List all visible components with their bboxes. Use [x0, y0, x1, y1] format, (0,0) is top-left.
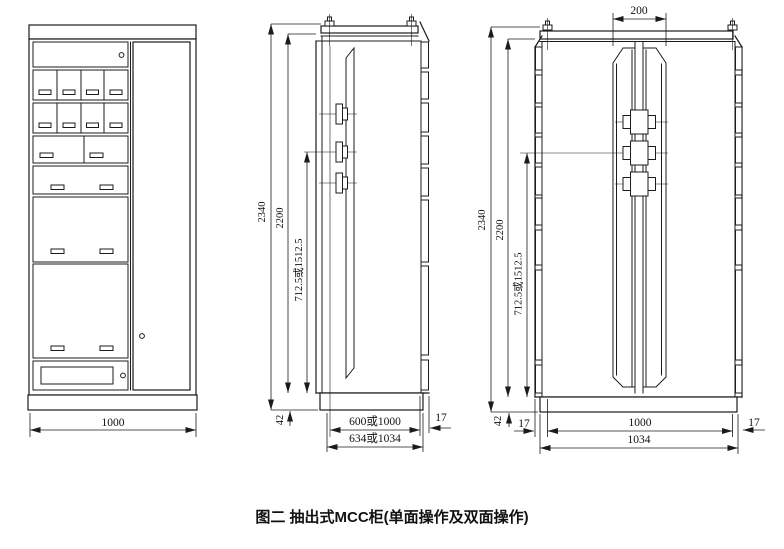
dim-label-overall-height: 2340 [477, 210, 488, 231]
dim-label-center-gap: 200 [630, 5, 648, 17]
louver [736, 230, 743, 265]
dim-front-width: 1000 [30, 413, 196, 437]
top-cover-band [29, 25, 196, 39]
louver [421, 266, 429, 355]
louver [736, 75, 743, 103]
drawer-handle [100, 346, 113, 351]
instrument-drawer [33, 42, 128, 67]
drawer-handle [51, 185, 64, 190]
drawer-handle [100, 249, 113, 254]
louver [421, 168, 429, 196]
louver [536, 75, 543, 103]
busbar-connector [631, 141, 649, 165]
drawer-handle [51, 249, 64, 254]
louver [736, 107, 743, 133]
drawer-handle [90, 153, 103, 158]
lifting-beam [321, 26, 418, 33]
dim-label-frame-height: 2200 [495, 220, 506, 241]
louver [736, 198, 743, 225]
dims-side-double: 200 2340 2200 712.5或1512.5 42 17 1000 10… [477, 5, 765, 454]
louver [536, 230, 543, 265]
dim-label-front-width: 1000 [102, 417, 125, 429]
dim-label-panel-thickness-left: 17 [518, 418, 530, 430]
drawer-handle [110, 123, 122, 128]
lifting-beam [540, 31, 733, 39]
louver [536, 107, 543, 133]
busbar-connector [623, 147, 631, 160]
drawer-cell [81, 70, 104, 100]
busbar-connector [648, 116, 656, 129]
busbar-connector [336, 142, 343, 162]
dim-label-width-overall: 1034 [628, 434, 651, 446]
louver [736, 167, 743, 195]
rear-louver-strip [421, 42, 429, 390]
cabinet-base [28, 395, 197, 410]
louver [421, 360, 429, 390]
drawer-cell [33, 103, 57, 133]
drawer-handle [39, 90, 51, 95]
right-top-chamfer [735, 36, 742, 47]
busbar-connector [343, 177, 348, 189]
drawer-handle [51, 346, 64, 351]
unit-panel [33, 197, 128, 262]
drawer-handle [63, 90, 75, 95]
busbar-connector [648, 178, 656, 191]
dim-label-frame-height: 2200 [275, 208, 286, 229]
louver [536, 137, 543, 163]
drawer-cell [81, 103, 104, 133]
side-view-double: 200 2340 2200 712.5或1512.5 42 17 1000 10… [477, 5, 765, 454]
rear-top-chamfer [420, 22, 429, 41]
busbar-connector [631, 172, 649, 196]
figure-caption: 图二 抽出式MCC柜(单面操作及双面操作) [255, 508, 528, 526]
louver [421, 103, 429, 132]
drawer-cell [104, 103, 128, 133]
drawer-handle [63, 123, 75, 128]
busbar-connector [623, 116, 631, 129]
left-louver-strip [536, 47, 543, 393]
louver [536, 270, 543, 360]
drawer-handle [40, 153, 53, 158]
right-door [133, 42, 190, 390]
bottom-panel-inset [41, 367, 113, 384]
drawer-cell [57, 70, 81, 100]
unit-panel [33, 264, 128, 358]
drawer-cell [33, 136, 84, 163]
busbar-connector [648, 147, 656, 160]
dim-label-busbar-height: 712.5或1512.5 [293, 239, 305, 302]
dim-label-depth-inner: 600或1000 [349, 415, 401, 428]
dim-label-base-height: 42 [275, 415, 286, 426]
dim-label-overall-height: 2340 [257, 202, 268, 223]
busbar-connector [623, 178, 631, 191]
louver [421, 72, 429, 99]
figure-page: 1000 [0, 0, 784, 549]
busbar-connector [343, 108, 348, 120]
dim-label-busbar-height: 712.5或1512.5 [513, 253, 525, 316]
busbar-connector [336, 173, 343, 193]
dim-label-width-inner: 1000 [629, 417, 652, 429]
busbar-connectors [304, 104, 357, 193]
dim-label-panel-thickness: 17 [435, 412, 447, 424]
louver [421, 200, 429, 262]
louver [736, 47, 743, 70]
side-view-single: 2340 2200 712.5或1512.5 42 600或1000 634或1… [257, 14, 451, 452]
drawer-handle [87, 90, 99, 95]
louver [536, 167, 543, 195]
dim-label-depth-overall: 634或1034 [349, 432, 401, 445]
drawer-cell [104, 70, 128, 100]
busbar-connector [336, 104, 343, 124]
dim-label-base-height: 42 [493, 416, 504, 427]
drawer-handle [110, 90, 122, 95]
drawer-handle [100, 185, 113, 190]
drawout-unit-rails [613, 42, 666, 394]
louver [536, 365, 543, 393]
drawer-cell [57, 103, 81, 133]
mcc-cabinet-technical-drawing: 1000 [0, 0, 784, 549]
louver [421, 42, 429, 68]
cabinet-base [540, 397, 737, 412]
louver [536, 198, 543, 225]
right-louver-strip [736, 47, 743, 393]
wide-drawer [33, 166, 128, 194]
drawer-cell [84, 136, 128, 163]
drawer-handle [39, 123, 51, 128]
drawer-cell [33, 70, 57, 100]
drawout-unit-rail [346, 48, 354, 378]
louver [536, 47, 543, 70]
drawer-handle [87, 123, 99, 128]
dim-label-panel-thickness-right: 17 [748, 417, 760, 429]
louver [736, 270, 743, 360]
busbar-connector [343, 146, 348, 158]
louver [736, 137, 743, 163]
busbar-connector [631, 110, 649, 134]
louver [421, 136, 429, 164]
louver [736, 365, 743, 393]
cabinet-base [320, 393, 423, 410]
front-view: 1000 [28, 25, 197, 437]
